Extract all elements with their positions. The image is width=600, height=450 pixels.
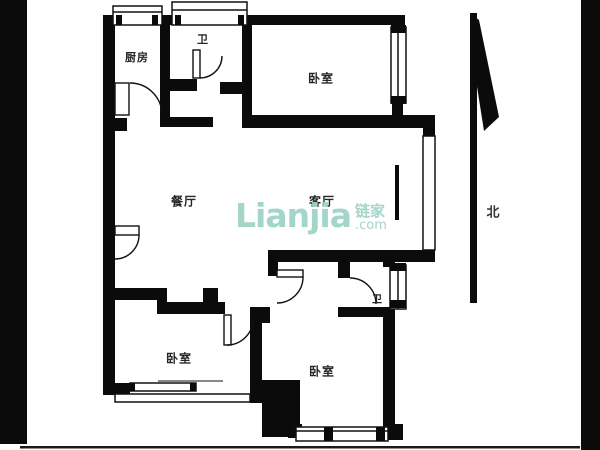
room-label-bedroom-bottom-left: 卧室 bbox=[166, 350, 192, 367]
room-label-bedroom-bottom-right: 卧室 bbox=[309, 363, 335, 380]
room-label-bath-bottom: 卫 bbox=[372, 291, 382, 306]
floor-plan-drawing bbox=[0, 0, 600, 450]
room-label-living-room: 客厅 bbox=[309, 193, 335, 210]
bedroom-bottom-right-window bbox=[296, 427, 388, 441]
bottom-edge-line bbox=[20, 446, 580, 449]
bedroom-bottom-right-door-arc bbox=[277, 277, 303, 303]
room-label-kitchen: 厨房 bbox=[125, 49, 149, 65]
bath-top-bay-window bbox=[172, 2, 247, 25]
north-label: 北 bbox=[486, 202, 499, 221]
kitchen-door-arc bbox=[130, 83, 162, 115]
right-edge-band bbox=[581, 0, 600, 450]
walls bbox=[103, 15, 435, 440]
living-room-glass-wall bbox=[423, 136, 435, 250]
bedroom-bottom-left-window bbox=[130, 383, 196, 391]
bedroom-bottom-right-door-leaf bbox=[277, 270, 303, 277]
bedroom-bottom-left-door-leaf bbox=[224, 315, 231, 345]
kitchen-door-leaf bbox=[115, 83, 129, 115]
room-label-dining-room: 餐厅 bbox=[171, 193, 197, 210]
left-edge-band bbox=[0, 0, 27, 444]
north-arrow bbox=[470, 13, 499, 303]
room-label-bath-top: 卫 bbox=[197, 31, 209, 47]
bath-top-door-leaf bbox=[193, 50, 200, 78]
bath-top-door-arc bbox=[200, 56, 222, 78]
bedroom-bottom-left-wall-line bbox=[115, 394, 250, 402]
entry-door-arc bbox=[115, 235, 139, 259]
floor-plan-image: 厨房 卫 卧室 餐厅 客厅 卧室 卫 卧室 北 Lianjia 链家 .com bbox=[0, 0, 600, 450]
entry-door-leaf bbox=[115, 226, 139, 235]
room-label-bedroom-top-right: 卧室 bbox=[308, 70, 334, 87]
